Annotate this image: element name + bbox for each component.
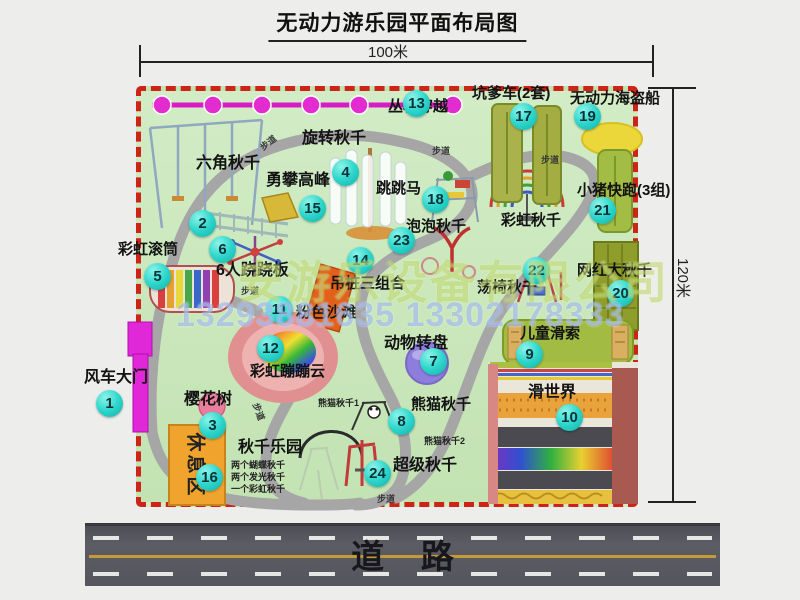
item-24-label: 超级秋千 [393, 458, 457, 474]
item-8-badge: 8 [388, 408, 415, 435]
item-21-badge: 21 [589, 197, 616, 224]
extra-label-rainbow-swing: 彩虹秋千 [501, 213, 561, 228]
path-label-4: 步道 [241, 284, 259, 297]
map-graphics [0, 0, 800, 600]
item-2-label: 六角秋千 [196, 156, 260, 172]
item-8-sublabel-1: 熊猫秋千1 [318, 399, 359, 408]
item-3-label: 樱花树 [184, 392, 232, 408]
item-22-badge: 22 [523, 257, 550, 284]
item-15-label: 勇攀高峰 [266, 173, 330, 189]
item-17-label: 坑爹车(2套) [472, 86, 550, 101]
item-5-label: 彩虹滚筒 [118, 242, 178, 257]
item-12-badge: 12 [257, 335, 284, 362]
path-label-3: 步道 [541, 153, 559, 166]
item-14-badge: 14 [347, 247, 374, 274]
item-16-sublabel-1: 两个蝴蝶秋千 [231, 461, 285, 470]
item-19-badge: 19 [574, 103, 601, 130]
item-7-badge: 7 [420, 348, 447, 375]
item-9-badge: 9 [516, 341, 543, 368]
item-13-badge: 13 [403, 90, 430, 117]
item-21-label: 小猪快跑(3组) [577, 183, 670, 198]
item-8-label: 熊猫秋千 [411, 397, 471, 412]
item-16-sublabel-3: 一个彩虹秋千 [231, 485, 285, 494]
item-23-badge: 23 [388, 227, 415, 254]
item-18-badge: 18 [422, 186, 449, 213]
item-2-badge: 2 [189, 210, 216, 237]
item-11-label: 粉色沙滩 [296, 305, 356, 320]
item-6-badge: 6 [209, 236, 236, 263]
pink-beach-icon [228, 311, 338, 403]
item-16-sublabel-2: 两个发光秋千 [231, 473, 285, 482]
item-1-label: 风车大门 [84, 370, 148, 386]
item-8-sublabel-2: 熊猫秋千2 [424, 437, 465, 446]
item-18-label: 跳跳马 [376, 181, 421, 196]
path-label-2: 步道 [432, 144, 450, 157]
item-9-label: 儿童滑索 [520, 326, 580, 341]
item-20-label: 网红大秋千 [577, 263, 652, 278]
path-label-6: 步道 [377, 492, 395, 505]
item-22-label: 荡椅秋千 [477, 280, 537, 295]
item-15-badge: 15 [299, 195, 326, 222]
swing-paradise-icon [300, 448, 338, 500]
playground-layout-map: 无动力游乐园平面布局图 100米 120米 [0, 0, 800, 600]
item-16-label: 秋千乐园 [238, 440, 302, 456]
item-23-label: 泡泡秋千 [406, 219, 466, 234]
item-5-badge: 5 [144, 263, 171, 290]
item-3-badge: 3 [199, 412, 226, 439]
item-6-label: 6人跷跷板 [216, 263, 289, 279]
item-17-badge: 17 [510, 103, 537, 130]
item-16-badge: 16 [196, 464, 223, 491]
item-12-label: 彩虹蹦蹦云 [250, 364, 325, 379]
item-24-badge: 24 [364, 460, 391, 487]
item-10-badge: 10 [556, 404, 583, 431]
item-10-label: 滑世界 [528, 385, 576, 401]
item-1-badge: 1 [96, 390, 123, 417]
item-4-label: 旋转秋千 [302, 131, 366, 147]
item-11-badge: 11 [266, 296, 293, 323]
item-4-badge: 4 [332, 159, 359, 186]
item-14-label: 吊桩三组合 [330, 276, 405, 291]
item-20-badge: 20 [607, 280, 634, 307]
